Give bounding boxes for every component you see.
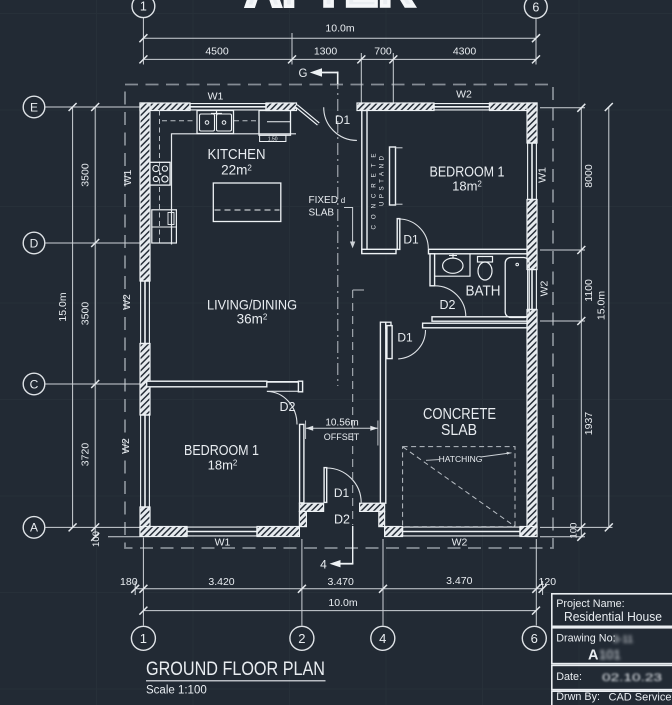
svg-text:SLAB: SLAB [441, 422, 477, 439]
svg-text:Date:: Date: [556, 671, 582, 683]
svg-text:4500: 4500 [205, 46, 229, 58]
svg-text:GROUND FLOOR PLAN: GROUND FLOOR PLAN [146, 658, 325, 680]
svg-text:3.470: 3.470 [446, 575, 472, 587]
svg-text:W2: W2 [452, 537, 468, 549]
svg-text:D2: D2 [280, 400, 296, 414]
svg-text:A: A [588, 648, 599, 664]
svg-text:3500: 3500 [80, 163, 92, 187]
svg-text:W2: W2 [120, 438, 132, 454]
svg-text:CONCRETE: CONCRETE [423, 406, 496, 423]
svg-text:10.56m: 10.56m [325, 418, 358, 429]
svg-text:100: 100 [569, 523, 580, 539]
svg-text:SLAB: SLAB [309, 208, 335, 219]
svg-text:D: D [30, 236, 39, 250]
svg-text:A: A [30, 521, 38, 535]
svg-text:AFTER: AFTER [245, 0, 415, 18]
svg-text:Project Name:: Project Name: [556, 598, 624, 610]
svg-text:1937: 1937 [583, 412, 595, 436]
svg-text:KITCHEN: KITCHEN [208, 146, 266, 163]
svg-text:C: C [30, 377, 39, 391]
svg-text:101: 101 [599, 647, 621, 662]
svg-text:700: 700 [374, 46, 392, 58]
svg-text:BATH: BATH [466, 284, 501, 300]
svg-text:LIVING/DINING: LIVING/DINING [207, 297, 297, 313]
svg-text:Drwn By:: Drwn By: [556, 691, 600, 703]
svg-text:D2: D2 [334, 513, 350, 527]
svg-text:3-11: 3-11 [613, 634, 633, 646]
svg-text:1: 1 [140, 631, 147, 646]
svg-text:CAD Service: CAD Service [609, 692, 672, 704]
svg-text:OFFSET: OFFSET [324, 432, 360, 442]
svg-text:D1: D1 [334, 486, 350, 500]
svg-text:W2: W2 [539, 280, 551, 296]
svg-text:Scale 1:100: Scale 1:100 [146, 685, 207, 697]
svg-text:D2: D2 [440, 298, 456, 312]
svg-text:D1: D1 [335, 113, 351, 127]
svg-text:15.0m: 15.0m [596, 291, 608, 320]
svg-text:D1: D1 [403, 233, 419, 247]
svg-text:D1: D1 [397, 331, 413, 345]
svg-text:3720: 3720 [80, 443, 92, 467]
svg-text:FIXED d: FIXED d [309, 195, 346, 206]
svg-text:3500: 3500 [80, 302, 92, 326]
svg-text:4: 4 [379, 631, 386, 646]
svg-text:HATCHING: HATCHING [439, 454, 483, 464]
svg-text:15.0m: 15.0m [57, 292, 69, 321]
svg-text:8000: 8000 [583, 164, 595, 188]
svg-text:10.0m: 10.0m [328, 597, 357, 609]
svg-text:100: 100 [91, 531, 102, 547]
svg-text:6: 6 [531, 631, 538, 646]
svg-text:W2: W2 [121, 294, 133, 310]
svg-text:W2: W2 [456, 89, 472, 101]
svg-text:Drawing No:: Drawing No: [556, 633, 615, 645]
svg-text:2: 2 [298, 631, 305, 646]
svg-text:W1: W1 [208, 91, 224, 103]
svg-text:G: G [299, 68, 308, 80]
svg-text:180: 180 [120, 576, 138, 588]
svg-text:10.0m: 10.0m [325, 23, 354, 35]
svg-text:W1: W1 [537, 167, 549, 183]
svg-text:4: 4 [320, 558, 327, 572]
svg-text:1.50: 1.50 [268, 137, 278, 143]
svg-text:E: E [30, 100, 38, 114]
svg-text:W1: W1 [215, 537, 231, 549]
svg-text:W1: W1 [122, 169, 134, 185]
svg-text:4300: 4300 [453, 46, 477, 58]
svg-text:120: 120 [539, 576, 557, 588]
svg-text:3.470: 3.470 [328, 576, 354, 588]
svg-text:1100: 1100 [583, 279, 595, 302]
svg-text:02.10.23: 02.10.23 [602, 672, 662, 684]
svg-text:3.420: 3.420 [208, 576, 234, 588]
svg-text:6: 6 [532, 0, 539, 14]
svg-text:1: 1 [140, 0, 147, 14]
svg-text:Residential House: Residential House [564, 609, 662, 624]
svg-text:1300: 1300 [314, 46, 338, 58]
